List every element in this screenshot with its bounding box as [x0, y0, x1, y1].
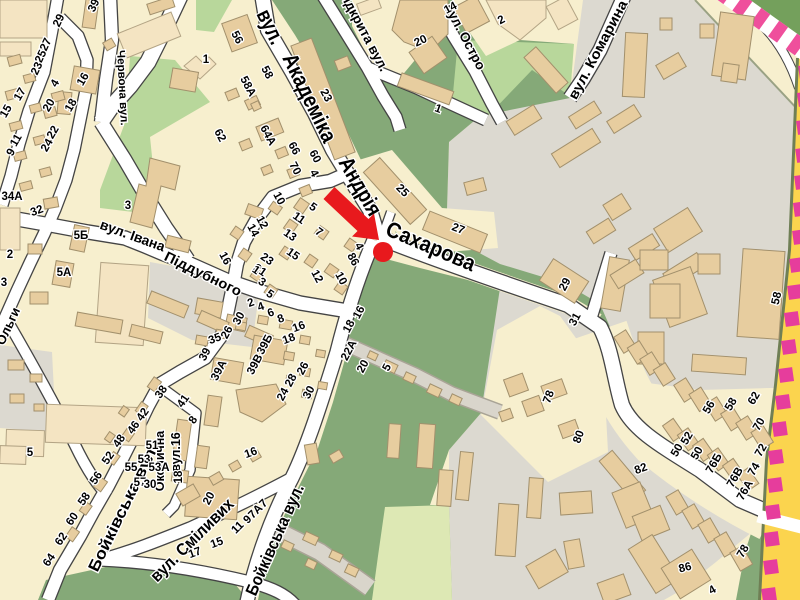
svg-text:1: 1 [203, 54, 210, 66]
svg-text:вул.16: вул.16 [169, 432, 183, 472]
svg-text:5Б: 5Б [74, 230, 89, 242]
svg-text:3: 3 [1, 277, 7, 289]
svg-text:3: 3 [125, 200, 131, 212]
svg-text:5А: 5А [57, 267, 72, 279]
svg-text:55: 55 [125, 462, 138, 474]
svg-text:2: 2 [7, 249, 13, 261]
svg-text:30: 30 [144, 479, 157, 491]
svg-text:18: 18 [173, 470, 185, 483]
svg-text:34А: 34А [1, 191, 22, 203]
svg-text:53А: 53А [148, 462, 169, 474]
svg-text:5: 5 [27, 447, 34, 459]
svg-text:51: 51 [146, 440, 159, 452]
